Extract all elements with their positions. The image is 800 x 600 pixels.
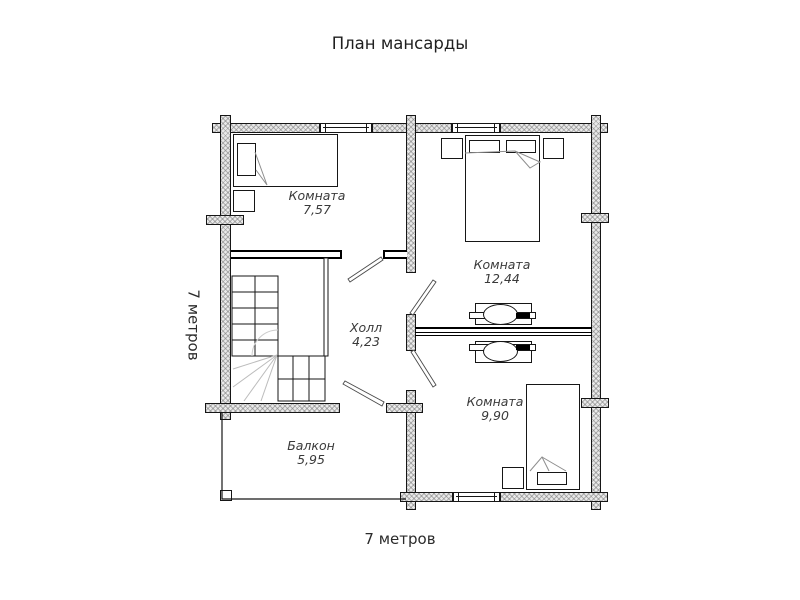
fold-bed-room-1 — [255, 152, 267, 185]
room-area: 4,23 — [352, 334, 380, 349]
room-name: Холл — [350, 320, 382, 335]
dimension-left: 7 метров — [183, 253, 203, 398]
room-name: Комната — [467, 394, 524, 409]
label-hall: Холл 4,23 — [316, 321, 416, 349]
label-room-2: Комната 12,44 — [442, 258, 562, 286]
room-name: Комната — [474, 257, 531, 272]
label-room-1: Комната 7,57 — [257, 189, 377, 217]
plan-linework — [0, 0, 800, 600]
label-balcony: Балкон 5,95 — [251, 439, 371, 467]
room-name: Балкон — [287, 438, 335, 453]
room-area: 7,57 — [303, 202, 331, 217]
door-leaf-room-3 — [411, 350, 436, 387]
label-room-3: Комната 9,90 — [435, 395, 555, 423]
floor-plan-page: План мансарды — [0, 0, 800, 600]
door-leaf-balcony — [343, 381, 384, 406]
door-leaf-stairs — [348, 257, 383, 282]
fold-bed-room-3 — [530, 457, 566, 471]
dimension-bottom: 7 метров — [320, 530, 480, 548]
room-area: 12,44 — [484, 271, 520, 286]
room-area: 9,90 — [481, 408, 509, 423]
room-area: 5,95 — [297, 452, 325, 467]
door-leaf-room-2 — [410, 280, 436, 315]
room-name: Комната — [289, 188, 346, 203]
stairs-lower-flight — [278, 356, 325, 401]
fold-bed-room-2 — [465, 151, 540, 168]
